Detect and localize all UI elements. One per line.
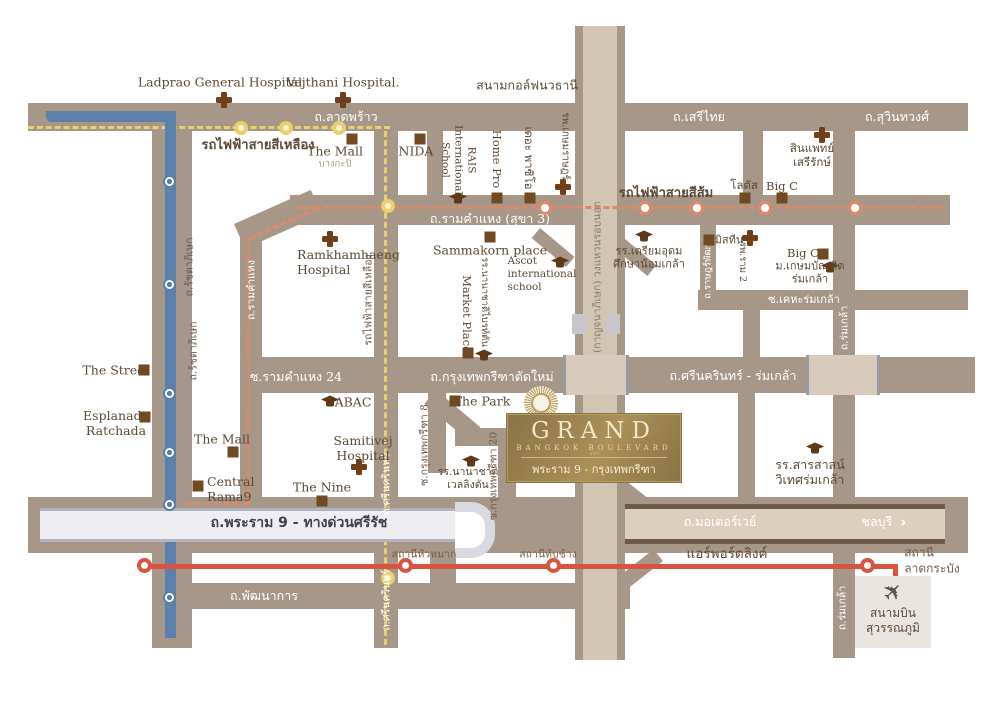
orange-station-3 [690,201,704,215]
rais-line1: RAIS [466,147,478,174]
mistine-square-icon [704,235,715,246]
rkh-line2: Hospital [297,262,350,277]
yellow-station-1 [234,121,248,135]
label-kanchanaphisek: (กาญจนาภิเษก) วงแหวนรอบนอก [589,201,606,353]
bigc-square-icon [777,193,788,204]
overpass-small-left [572,314,586,334]
landmark-ram2-hospital: รพ.ราม 2 [736,242,748,282]
school-cap-icon [462,456,480,467]
rkh-line1: Ramkhamhaeng [297,247,400,262]
hospital-cross-icon [322,231,338,247]
landmark-themall-bangkapi: The Mall บางกะปิ [307,144,363,171]
landmark-triamudom: รร.เตรียมอุดม ศึกษาน้อมเกล้า [613,245,685,272]
central-line1: Central [207,474,254,489]
bigc-square-icon [818,249,829,260]
landmark-sinphaet: สินแพทย์ เสรีรักษ์ [790,141,834,169]
blue-station-5 [163,498,176,511]
arrow-right-icon: › [892,513,906,531]
ascot-line1: Ascot [508,255,537,267]
landmark-bigc-top: Big C [766,179,798,193]
landmark-rais-school: RAIS International School [438,125,477,195]
yellow-station-2 [279,121,293,135]
landmark-themall-rama9: The Mall [194,431,250,446]
orange-station-4 [758,201,772,215]
blue-station-1 [163,175,176,188]
landmark-kasemrad-hospital: รพ.เกษมราษฎร์ [558,112,571,179]
blue-line-vertical [165,111,176,638]
zigzag-ornament-icon: ∨∨∨ [508,452,680,456]
landmark-homepro: Home Pro [490,130,504,188]
label-station-thapchang: สถานีทับช้าง [519,546,577,563]
thenine-square-icon [317,496,328,507]
rais-line2: International [453,125,465,195]
blue-station-2 [163,278,176,291]
suvarnabhumi-airport-box: ✈ สนามบิน สุวรรณภูมิ [855,576,931,648]
blue-station-3 [163,387,176,400]
landmark-paseo: เดอะ พาซิโอ [522,126,536,189]
hospital-cross-icon [555,179,571,195]
school-cap-icon [635,231,653,242]
triamudom-line1: รร.เตรียมอุดม [616,245,683,258]
label-ratchadaphisek-lower: ถ.รัชดาภิเษก [185,322,202,381]
label-rk24: ซ.รามคำแหง 24 [250,367,342,387]
label-serithai: ถ.เสรีไทย [673,107,725,127]
blue-station-4 [163,446,176,459]
logo-location: พระราม 9 - กรุงเทพกรีฑา [508,460,680,478]
wellington-line2: เวลลิงตัน [447,479,488,491]
hospital-cross-icon [335,92,351,108]
themall-name: The Mall [307,144,363,159]
marketplace-square-icon [463,348,474,359]
landmark-ascot: Ascot international school [508,255,577,293]
overpass-kanchanaphisek [563,355,629,395]
landmark-thenine: The Nine [293,479,351,494]
overpass-romklao [806,355,880,395]
kasembundit-line1: ม.เกษมบัณฑิต [775,260,844,273]
landmark-lotus: โลตัส [730,178,758,192]
sammakorn-square-icon [485,232,496,243]
samitivej-line1: Samitivej [333,433,392,448]
label-ramkhamhaeng-h: ถ.รามคำแหง (สุขา 3) [430,209,550,229]
location-map: ถ.ลาดพร้าว ถ.เสรีไทย ถ.สุวินทวงศ์ ถ.รามค… [0,0,1000,707]
blue-line-horizontal [46,111,172,122]
label-kreetha-new: ถ.กรุงเทพกรีฑาตัดใหม่ [430,367,553,387]
label-orange-line: รถไฟฟ้าสายสีส้ม [619,186,713,202]
grand-logo-box: GRAND BANGKOK BOULEVARD ∨∨∨ พระราม 9 - ก… [507,414,681,482]
yellow-station-lam-sali [381,199,395,213]
hospital-cross-icon [216,92,232,108]
rais-line3: School [439,142,451,178]
landmark-abac: ABAC [335,394,372,409]
logo-name: GRAND [508,418,680,444]
sinphaet-line1: สินแพทย์ [790,141,834,155]
landmark-central-rama9: Central Rama9 [207,474,254,505]
esplanade-line2: Ratchada [86,423,146,438]
landmark-vejthani-hospital: Vejthani Hospital. [287,74,400,89]
themall-sub: บางกะปิ [307,159,363,171]
overpass-small-right [606,314,620,334]
label-rama9-expressway: ถ.พระราม 9 - ทางด่วนศรีรัช [211,512,388,534]
landmark-marketplace: Market Place [460,275,474,353]
lotus-square-icon [740,193,751,204]
airport-link-line [143,564,898,569]
school-cap-icon [475,350,493,361]
paseo-square-icon [525,193,536,204]
label-pattanakarn: ถ.พัฒนาการ [230,586,298,606]
label-romklao-lower: ถ.ร่มเกล้า [834,586,851,631]
orange-station-2 [638,201,652,215]
school-cap-icon [806,443,824,454]
label-motorway: ถ.มอเตอร์เวย์ [684,512,757,532]
logo-divider [521,457,667,458]
ascot-line2: international [508,268,577,280]
kasembundit-line2: ร่มเกล้า [792,273,829,286]
themall-square-icon [228,447,239,458]
homepro-square-icon [492,193,503,204]
hospital-cross-icon [351,459,367,475]
landmark-wellington: รร.นานาชาติ เวลลิงตัน [438,466,499,492]
ascot-line3: school [508,280,542,292]
landmark-nida: NIDA [399,143,434,158]
label-station-huamak: สถานีหัวหมาก [392,546,457,563]
blue-station-6 [163,591,176,604]
label-romklao-upper: ถ.ร่มเกล้า [836,306,853,351]
sinphaet-line2: เสรีรักษ์ [793,155,831,169]
sarasas-line1: รร.สารสาสน์ [775,457,845,472]
orange-station-5 [848,201,862,215]
label-ratchadaphisek-upper: ถ.รัชดาภิเษก [181,238,198,297]
landmark-brighton-school: รร.นานาชาติไบรท์ตัน [478,257,490,347]
label-airport-link: แอร์พอร์ตลิงค์ [687,546,768,562]
landmark-kasembundit: ม.เกษมบัณฑิต ร่มเกล้า [775,260,844,287]
label-ramkhamhaeng-v: ถ.รามคำแหง [243,260,260,320]
sarasas-line2: วิเทศร่มเกล้า [776,472,845,487]
landmark-bigc-right: Big C [787,246,819,260]
esplanade-square-icon [140,412,151,423]
label-ladprao: ถ.ลาดพร้าว [314,107,377,127]
central-line2: Rama9 [207,489,251,504]
landmark-navatanee-golf: สนามกอล์ฟนวธานี [476,77,578,92]
triamudom-line2: ศึกษาน้อมเกล้า [613,258,685,271]
red-station-ladkrabang [860,558,875,573]
label-srinakarin-romklao: ถ.ศรีนครินทร์ - ร่มเกล้า [670,366,797,386]
landmark-sarasas: รร.สารสาสน์ วิเทศร่มเกล้า [775,457,845,488]
red-station-west [137,558,152,573]
chonburi-text: ชลบุรี [862,514,893,529]
label-chonburi: ชลบุรี› [862,512,907,532]
road-sarasas-soi [738,393,755,505]
label-kreetha8: ซ.กรุงเทพกรีฑา 8 [416,404,433,486]
label-srinagarindra-south: ถ.ศรีนครินทร์ [378,569,395,631]
label-yellow-line: รถไฟฟ้าสายสีเหลือง [201,138,314,154]
wellington-line1: รร.นานาชาติ [438,466,499,478]
landmark-ramkhamhaeng-hospital: Ramkhamhaeng Hospital [297,247,400,278]
landmark-thepark: The Park [454,393,511,408]
school-cap-icon [449,193,467,204]
thestreet-square-icon [139,365,150,376]
central-square-icon [193,481,204,492]
landmark-ladprao-hospital: Ladprao General Hospital [138,74,302,89]
label-suwinthawong: ถ.สุวินทวงศ์ [865,107,929,127]
label-kheha-romklao: ซ.เคหะร่มเกล้า [768,290,840,308]
